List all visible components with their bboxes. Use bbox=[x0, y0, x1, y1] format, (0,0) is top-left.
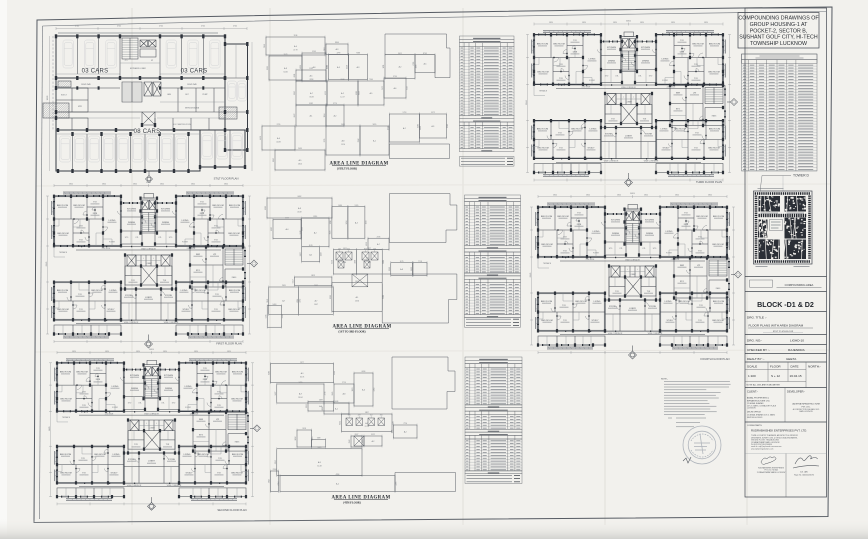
svg-text:0000X0000: 0000X0000 bbox=[710, 46, 719, 48]
svg-text:0000X0000: 0000X0000 bbox=[609, 121, 618, 123]
svg-text:A-8: A-8 bbox=[313, 66, 316, 69]
svg-text:A-3: A-3 bbox=[355, 221, 358, 224]
svg-text:03 CARS: 03 CARS bbox=[82, 69, 109, 75]
svg-text:0000X0000: 0000X0000 bbox=[557, 66, 566, 68]
svg-text:0000X0000: 0000X0000 bbox=[59, 311, 68, 313]
svg-text:0000X0000: 0000X0000 bbox=[604, 136, 613, 138]
svg-text:8860: 8860 bbox=[322, 407, 324, 411]
svg-text:2200 WIDE: 2200 WIDE bbox=[671, 259, 681, 261]
svg-text:4762: 4762 bbox=[299, 299, 301, 303]
svg-text:0000X0000: 0000X0000 bbox=[233, 401, 242, 403]
svg-text:52.48: 52.48 bbox=[317, 466, 321, 468]
svg-text:9965: 9965 bbox=[332, 392, 334, 396]
svg-text:36810: 36810 bbox=[626, 20, 631, 22]
svg-text:0000X0000: 0000X0000 bbox=[696, 239, 705, 241]
svg-text:0000X0000: 0000X0000 bbox=[710, 131, 719, 133]
svg-text:FOYER: FOYER bbox=[112, 407, 119, 409]
svg-text:7748: 7748 bbox=[325, 392, 327, 396]
svg-text:A-7: A-7 bbox=[377, 243, 380, 246]
svg-text:UTL: UTL bbox=[615, 76, 618, 78]
svg-text:7490: 7490 bbox=[330, 220, 332, 224]
svg-text:0000X0000: 0000X0000 bbox=[201, 381, 210, 383]
svg-text:SOC. MEETING ROOM: SOC. MEETING ROOM bbox=[173, 124, 192, 126]
svg-text:8897: 8897 bbox=[273, 158, 275, 162]
svg-text:4740: 4740 bbox=[201, 26, 205, 28]
svg-text:0000X0000: 0000X0000 bbox=[591, 322, 600, 324]
svg-text:1590: 1590 bbox=[447, 124, 449, 128]
svg-text:A-2: A-2 bbox=[336, 483, 339, 486]
svg-text:8700: 8700 bbox=[330, 295, 332, 299]
svg-text:0000X0000: 0000X0000 bbox=[127, 211, 136, 213]
svg-text:0000X0000: 0000X0000 bbox=[542, 218, 551, 220]
svg-text:UTL: UTL bbox=[135, 237, 138, 239]
svg-text:UTL: UTL bbox=[619, 248, 622, 250]
svg-text:2200 WIDE: 2200 WIDE bbox=[187, 248, 197, 250]
svg-text:0000X0000: 0000X0000 bbox=[196, 292, 205, 294]
svg-text:287: 287 bbox=[358, 415, 361, 417]
svg-text:0000X0000: 0000X0000 bbox=[213, 296, 222, 298]
svg-text:1514: 1514 bbox=[324, 114, 326, 118]
svg-text:A-1: A-1 bbox=[356, 296, 359, 299]
svg-text:TERRACE: TERRACE bbox=[59, 251, 68, 254]
svg-text:4799: 4799 bbox=[337, 53, 341, 55]
svg-text:FOYER: FOYER bbox=[589, 80, 596, 82]
svg-text:0000X0000: 0000X0000 bbox=[62, 474, 71, 476]
svg-text:47.79: 47.79 bbox=[293, 50, 297, 52]
svg-text:0000X0000: 0000X0000 bbox=[91, 215, 100, 217]
svg-text:2200 WIDE: 2200 WIDE bbox=[102, 248, 112, 250]
svg-text:WIDE CORRIDOR: WIDE CORRIDOR bbox=[604, 161, 619, 163]
svg-text:9403: 9403 bbox=[273, 304, 277, 306]
svg-text:5820: 5820 bbox=[194, 351, 198, 353]
svg-text:L: L bbox=[153, 258, 154, 260]
svg-text:2039: 2039 bbox=[298, 148, 302, 150]
svg-text:0000X0000: 0000X0000 bbox=[160, 282, 169, 284]
svg-text:4396: 4396 bbox=[336, 474, 340, 476]
svg-text:0000X0000: 0000X0000 bbox=[210, 256, 219, 258]
svg-text:WIDE CORRIDOR: WIDE CORRIDOR bbox=[648, 333, 663, 335]
svg-text:3197: 3197 bbox=[294, 91, 296, 95]
svg-text:A-9: A-9 bbox=[299, 393, 302, 396]
svg-text:L: L bbox=[623, 97, 624, 99]
svg-text:STO: STO bbox=[609, 248, 613, 250]
svg-text:5557: 5557 bbox=[293, 279, 295, 283]
svg-text:2196: 2196 bbox=[377, 236, 381, 238]
svg-text:1701: 1701 bbox=[383, 65, 385, 69]
svg-text:0000X0000: 0000X0000 bbox=[163, 446, 172, 448]
svg-text:5820: 5820 bbox=[105, 351, 109, 353]
svg-text:STO: STO bbox=[605, 76, 609, 78]
svg-text:36810: 36810 bbox=[149, 349, 154, 351]
svg-text:A-6: A-6 bbox=[277, 137, 280, 140]
svg-text:WIDE CORRIDOR: WIDE CORRIDOR bbox=[644, 161, 659, 163]
svg-text:FOURTH FLOOR PLAN: FOURTH FLOOR PLAN bbox=[701, 357, 730, 361]
svg-text:SECOND FLOOR PLAN: SECOND FLOOR PLAN bbox=[217, 508, 246, 512]
svg-text:0000X0000: 0000X0000 bbox=[592, 233, 601, 235]
svg-text:STO: STO bbox=[649, 76, 653, 78]
svg-text:0000X0000: 0000X0000 bbox=[641, 49, 650, 51]
svg-text:5820: 5820 bbox=[102, 184, 106, 186]
svg-text:0000X0000: 0000X0000 bbox=[185, 474, 194, 476]
svg-text:7658: 7658 bbox=[273, 469, 277, 471]
svg-text:POCKET-2, SECTOR B,: POCKET-2, SECTOR B, bbox=[750, 28, 808, 34]
svg-text:0000X0000: 0000X0000 bbox=[96, 456, 105, 458]
svg-text:A-2: A-2 bbox=[403, 127, 406, 130]
svg-text:1118: 1118 bbox=[309, 68, 313, 70]
svg-text:9310: 9310 bbox=[356, 91, 358, 95]
svg-text:A-3: A-3 bbox=[337, 66, 340, 69]
svg-text:9774: 9774 bbox=[333, 103, 337, 105]
svg-text:0000X0000: 0000X0000 bbox=[107, 311, 116, 313]
svg-text:5820: 5820 bbox=[191, 184, 195, 186]
svg-text:0000X0000: 0000X0000 bbox=[664, 303, 673, 305]
svg-text:A-9: A-9 bbox=[357, 66, 360, 69]
svg-text:4740: 4740 bbox=[159, 26, 163, 28]
svg-text:DRIVE WAY: DRIVE WAY bbox=[81, 83, 91, 86]
svg-text:8464: 8464 bbox=[340, 421, 342, 425]
svg-text:A-1: A-1 bbox=[301, 372, 304, 375]
svg-text:UTL: UTL bbox=[642, 248, 645, 250]
svg-text:8446: 8446 bbox=[335, 401, 339, 403]
svg-text:0000X0000: 0000X0000 bbox=[613, 293, 622, 295]
svg-text:0000X0000: 0000X0000 bbox=[696, 253, 705, 255]
svg-text:352: 352 bbox=[347, 249, 350, 251]
svg-text:0000X0000: 0000X0000 bbox=[682, 215, 691, 217]
svg-text:0000X0000: 0000X0000 bbox=[694, 267, 703, 269]
svg-text:3206: 3206 bbox=[396, 482, 398, 486]
svg-text:0000X0000: 0000X0000 bbox=[694, 46, 703, 48]
svg-text:0000X0000: 0000X0000 bbox=[538, 131, 547, 133]
svg-text:9522: 9522 bbox=[371, 434, 375, 436]
svg-text:WIDE CORRIDOR: WIDE CORRIDOR bbox=[625, 259, 640, 261]
svg-text:A-1: A-1 bbox=[373, 140, 376, 143]
svg-text:A-4: A-4 bbox=[286, 228, 289, 231]
svg-text:0000X0000: 0000X0000 bbox=[80, 393, 89, 395]
svg-text:UTL: UTL bbox=[138, 403, 141, 405]
svg-text:2705: 2705 bbox=[277, 124, 281, 126]
svg-text:823: 823 bbox=[364, 249, 367, 251]
svg-text:18220: 18220 bbox=[47, 96, 49, 101]
svg-text:0000X0000: 0000X0000 bbox=[539, 150, 548, 152]
svg-text:A-2: A-2 bbox=[365, 422, 368, 425]
svg-text:161: 161 bbox=[366, 258, 369, 260]
svg-text:0000X0000: 0000X0000 bbox=[593, 303, 602, 305]
svg-text:UTL: UTL bbox=[161, 403, 164, 405]
svg-text:6422: 6422 bbox=[420, 126, 422, 130]
svg-text:5820: 5820 bbox=[617, 195, 621, 197]
svg-text:60.76: 60.76 bbox=[300, 377, 304, 379]
svg-text:COMPOUNDING DRAWINGS OF: COMPOUNDING DRAWINGS OF bbox=[738, 16, 819, 22]
svg-text:8745: 8745 bbox=[423, 53, 427, 55]
svg-text:5820: 5820 bbox=[671, 22, 675, 24]
svg-text:0000X0000: 0000X0000 bbox=[560, 307, 569, 309]
svg-text:0000X0000: 0000X0000 bbox=[167, 461, 176, 463]
svg-text:5820: 5820 bbox=[644, 195, 648, 197]
svg-text:LOBBY: LOBBY bbox=[626, 102, 633, 104]
svg-text:(4TH FLOOR): (4TH FLOOR) bbox=[343, 502, 360, 505]
svg-text:0000X0000: 0000X0000 bbox=[77, 242, 86, 244]
svg-text:0000X0000: 0000X0000 bbox=[696, 322, 705, 324]
svg-text:A-5: A-5 bbox=[370, 92, 373, 95]
svg-text:0000X0000: 0000X0000 bbox=[692, 150, 701, 152]
svg-text:0000X0000: 0000X0000 bbox=[608, 308, 617, 310]
svg-text:A-2: A-2 bbox=[404, 431, 407, 434]
svg-text:0000X0000: 0000X0000 bbox=[216, 460, 225, 462]
svg-text:0000X0000: 0000X0000 bbox=[201, 370, 210, 372]
svg-text:08 CARS: 08 CARS bbox=[134, 129, 161, 135]
svg-text:DRIVE WAY: DRIVE WAY bbox=[187, 83, 197, 86]
svg-text:1584: 1584 bbox=[366, 220, 368, 224]
svg-text:03 CARS: 03 CARS bbox=[181, 69, 208, 75]
svg-text:A-7: A-7 bbox=[315, 300, 318, 303]
svg-text:THIRD FLOOR PLAN: THIRD FLOOR PLAN bbox=[696, 180, 722, 184]
svg-text:L: L bbox=[627, 269, 628, 271]
svg-text:6688: 6688 bbox=[334, 371, 336, 375]
svg-text:0000X0000: 0000X0000 bbox=[182, 311, 191, 313]
svg-text:1215: 1215 bbox=[267, 66, 269, 70]
svg-text:7790: 7790 bbox=[403, 423, 407, 425]
svg-text:0000X0000: 0000X0000 bbox=[215, 474, 224, 476]
svg-text:FOYER: FOYER bbox=[662, 80, 669, 82]
svg-text:2200 WIDE: 2200 WIDE bbox=[105, 413, 115, 415]
svg-text:4459: 4459 bbox=[260, 136, 262, 140]
svg-text:1492: 1492 bbox=[331, 260, 333, 264]
svg-text:23.36: 23.36 bbox=[355, 301, 359, 303]
svg-text:FOYER: FOYER bbox=[666, 253, 673, 255]
svg-text:3597: 3597 bbox=[275, 460, 277, 464]
svg-text:2073: 2073 bbox=[284, 54, 288, 56]
svg-text:7677: 7677 bbox=[382, 86, 384, 90]
svg-text:4303: 4303 bbox=[374, 388, 376, 392]
svg-text:0000X0000: 0000X0000 bbox=[181, 222, 190, 224]
svg-text:1248: 1248 bbox=[320, 252, 322, 256]
svg-text:A-9: A-9 bbox=[432, 125, 435, 128]
svg-text:15.54: 15.54 bbox=[341, 144, 345, 146]
svg-text:8492: 8492 bbox=[311, 275, 315, 277]
svg-text:0000X0000: 0000X0000 bbox=[710, 74, 719, 76]
svg-text:5820: 5820 bbox=[613, 22, 617, 24]
svg-text:7725: 7725 bbox=[324, 139, 326, 143]
svg-text:4200: 4200 bbox=[354, 260, 356, 264]
svg-text:5820: 5820 bbox=[582, 22, 586, 24]
svg-text:TOWER D: TOWER D bbox=[793, 174, 809, 178]
svg-text:36810: 36810 bbox=[146, 182, 151, 184]
svg-text:0000X0000: 0000X0000 bbox=[199, 456, 208, 458]
svg-text:0000X0000: 0000X0000 bbox=[641, 63, 650, 65]
svg-text:A-7: A-7 bbox=[282, 300, 285, 303]
svg-text:0000X0000: 0000X0000 bbox=[714, 322, 723, 324]
svg-text:0000X0000: 0000X0000 bbox=[628, 310, 637, 312]
svg-text:0000X0000: 0000X0000 bbox=[58, 292, 67, 294]
svg-text:1736: 1736 bbox=[388, 126, 390, 130]
svg-text:A-2: A-2 bbox=[399, 66, 402, 69]
svg-text:STILT FLOOR PLAN: STILT FLOOR PLAN bbox=[214, 177, 239, 181]
svg-text:4740: 4740 bbox=[117, 26, 121, 28]
svg-text:0000X0000: 0000X0000 bbox=[660, 131, 669, 133]
svg-text:-2.5: -2.5 bbox=[125, 60, 128, 62]
svg-text:44.83: 44.83 bbox=[276, 142, 280, 144]
svg-text:0000X0000: 0000X0000 bbox=[161, 224, 170, 226]
svg-text:0000X0000: 0000X0000 bbox=[230, 292, 239, 294]
svg-text:8804: 8804 bbox=[335, 42, 339, 44]
svg-text:7061: 7061 bbox=[264, 44, 266, 48]
svg-text:GROUP HOUSING-1 AT: GROUP HOUSING-1 AT bbox=[750, 22, 809, 28]
svg-text:0000X0000: 0000X0000 bbox=[77, 228, 86, 230]
svg-text:0000X0000: 0000X0000 bbox=[194, 272, 203, 274]
svg-text:A-8: A-8 bbox=[342, 140, 345, 143]
svg-text:5820: 5820 bbox=[708, 195, 712, 197]
svg-text:5820: 5820 bbox=[704, 22, 708, 24]
svg-text:0000X0000: 0000X0000 bbox=[575, 215, 584, 217]
svg-text:0000X0000: 0000X0000 bbox=[674, 111, 683, 113]
svg-text:0000X0000: 0000X0000 bbox=[682, 226, 691, 228]
svg-text:L: L bbox=[633, 97, 634, 99]
svg-text:LOBBY: LOBBY bbox=[149, 428, 156, 430]
svg-text:0000X0000: 0000X0000 bbox=[91, 204, 100, 206]
svg-text:0000X0000: 0000X0000 bbox=[110, 474, 119, 476]
svg-text:0000X0000: 0000X0000 bbox=[577, 303, 586, 305]
svg-text:0000X0000: 0000X0000 bbox=[230, 311, 239, 313]
svg-text:A-5: A-5 bbox=[299, 159, 302, 162]
svg-text:5820: 5820 bbox=[227, 351, 231, 353]
svg-text:3672: 3672 bbox=[294, 114, 296, 118]
svg-text:(STILT FLOOR): (STILT FLOOR) bbox=[337, 167, 357, 170]
svg-text:1248: 1248 bbox=[347, 65, 349, 69]
svg-text:TERRACE: TERRACE bbox=[543, 262, 552, 265]
svg-text:6519: 6519 bbox=[309, 245, 313, 247]
svg-text:9380: 9380 bbox=[269, 371, 271, 375]
svg-text:0000X0000: 0000X0000 bbox=[111, 388, 120, 390]
svg-text:9320: 9320 bbox=[265, 206, 267, 210]
svg-text:5820: 5820 bbox=[224, 184, 228, 186]
svg-text:5820: 5820 bbox=[136, 351, 140, 353]
svg-text:1275: 1275 bbox=[392, 430, 394, 434]
svg-text:STO: STO bbox=[653, 248, 657, 250]
svg-text:0000X0000: 0000X0000 bbox=[710, 150, 719, 152]
svg-text:2200 WIDE: 2200 WIDE bbox=[586, 259, 596, 261]
svg-text:0000X0000: 0000X0000 bbox=[678, 267, 687, 269]
svg-text:9750: 9750 bbox=[393, 76, 397, 78]
svg-text:0000X0000: 0000X0000 bbox=[164, 377, 173, 379]
svg-text:0000X0000: 0000X0000 bbox=[571, 54, 580, 56]
svg-text:2200 WIDE: 2200 WIDE bbox=[667, 87, 677, 89]
svg-text:12.27: 12.27 bbox=[340, 97, 344, 99]
svg-text:0000X0000: 0000X0000 bbox=[561, 253, 570, 255]
svg-text:A-9: A-9 bbox=[336, 48, 339, 51]
svg-text:16.47: 16.47 bbox=[314, 304, 318, 306]
svg-text:0000X0000: 0000X0000 bbox=[124, 297, 133, 299]
svg-text:2768: 2768 bbox=[282, 314, 284, 318]
svg-text:A-7: A-7 bbox=[310, 92, 313, 95]
svg-text:L: L bbox=[637, 269, 638, 271]
svg-text:36810: 36810 bbox=[630, 193, 635, 195]
svg-text:0000X0000: 0000X0000 bbox=[698, 218, 707, 220]
svg-text:4740: 4740 bbox=[75, 26, 79, 28]
svg-text:2261: 2261 bbox=[294, 74, 296, 78]
svg-text:0000X0000: 0000X0000 bbox=[539, 74, 548, 76]
svg-text:0000X0000: 0000X0000 bbox=[94, 370, 103, 372]
svg-text:0000X0000: 0000X0000 bbox=[127, 461, 136, 463]
svg-text:3611: 3611 bbox=[398, 53, 402, 55]
svg-text:0000X0000: 0000X0000 bbox=[561, 322, 570, 324]
svg-text:28.25: 28.25 bbox=[298, 164, 302, 166]
svg-text:WIDE CORRIDOR: WIDE CORRIDOR bbox=[621, 87, 636, 89]
svg-text:7388: 7388 bbox=[356, 53, 360, 55]
svg-text:0000X0000: 0000X0000 bbox=[543, 246, 552, 248]
svg-text:6096: 6096 bbox=[362, 371, 366, 373]
svg-text:986: 986 bbox=[348, 415, 351, 417]
svg-text:0000X0000: 0000X0000 bbox=[692, 66, 701, 68]
svg-text:0000X0000: 0000X0000 bbox=[79, 460, 88, 462]
svg-text:TERRACE: TERRACE bbox=[62, 416, 71, 419]
svg-text:5572: 5572 bbox=[431, 112, 435, 114]
svg-text:(1ST TO 3RD FLOOR): (1ST TO 3RD FLOOR) bbox=[339, 331, 366, 334]
svg-text:7933: 7933 bbox=[349, 440, 351, 444]
svg-text:FOYER: FOYER bbox=[593, 253, 600, 255]
svg-text:4555: 4555 bbox=[325, 91, 327, 95]
svg-text:5582: 5582 bbox=[309, 103, 313, 105]
svg-text:0000X0000: 0000X0000 bbox=[678, 54, 687, 56]
svg-text:0000X0000: 0000X0000 bbox=[607, 49, 616, 51]
svg-text:0000X0000: 0000X0000 bbox=[108, 222, 117, 224]
svg-text:WIDE CORRIDOR: WIDE CORRIDOR bbox=[144, 414, 159, 416]
svg-text:0000X0000: 0000X0000 bbox=[665, 233, 674, 235]
svg-text:LOBBY: LOBBY bbox=[146, 263, 153, 265]
svg-text:0000X0000: 0000X0000 bbox=[161, 211, 170, 213]
svg-text:6517: 6517 bbox=[407, 86, 409, 90]
svg-text:2200 WIDE: 2200 WIDE bbox=[582, 87, 592, 89]
svg-text:0000X0000: 0000X0000 bbox=[164, 297, 173, 299]
svg-text:0000X0000: 0000X0000 bbox=[215, 407, 224, 409]
svg-text:LOBBY: LOBBY bbox=[630, 274, 637, 276]
svg-text:0000X0000: 0000X0000 bbox=[61, 456, 70, 458]
svg-text:9887: 9887 bbox=[365, 412, 369, 414]
svg-text:UTL: UTL bbox=[638, 76, 641, 78]
svg-text:A-2: A-2 bbox=[314, 231, 317, 234]
svg-text:0000X0000: 0000X0000 bbox=[644, 136, 653, 138]
svg-text:STO: STO bbox=[125, 237, 129, 239]
svg-text:7998: 7998 bbox=[358, 139, 360, 143]
svg-text:0000X0000: 0000X0000 bbox=[557, 80, 566, 82]
svg-text:0000X0000: 0000X0000 bbox=[144, 299, 153, 301]
svg-text:0000X0000: 0000X0000 bbox=[662, 150, 671, 152]
svg-text:0000X0000: 0000X0000 bbox=[556, 135, 565, 137]
svg-text:0000X0000: 0000X0000 bbox=[561, 239, 570, 241]
svg-text:PUMP: PUMP bbox=[202, 94, 208, 96]
svg-text:2200 WIDE: 2200 WIDE bbox=[190, 413, 200, 415]
svg-text:0000X0000: 0000X0000 bbox=[217, 374, 226, 376]
svg-text:4740: 4740 bbox=[233, 26, 237, 28]
svg-text:WIDE CORRIDOR: WIDE CORRIDOR bbox=[124, 322, 139, 324]
svg-text:A-8: A-8 bbox=[284, 67, 287, 70]
svg-text:0000X0000: 0000X0000 bbox=[80, 407, 89, 409]
svg-text:0000X0000: 0000X0000 bbox=[112, 456, 121, 458]
svg-text:0000X0000: 0000X0000 bbox=[59, 235, 68, 237]
svg-text:0000X0000: 0000X0000 bbox=[697, 307, 706, 309]
svg-text:0000X0000: 0000X0000 bbox=[80, 474, 89, 476]
svg-text:0000X0000: 0000X0000 bbox=[714, 218, 723, 220]
svg-text:A-6: A-6 bbox=[394, 87, 397, 90]
svg-text:0000X0000: 0000X0000 bbox=[624, 138, 633, 140]
svg-text:0000X0000: 0000X0000 bbox=[198, 215, 207, 217]
svg-text:0000X0000: 0000X0000 bbox=[197, 437, 206, 439]
svg-text:0000X0000: 0000X0000 bbox=[127, 224, 136, 226]
svg-text:0000X0000: 0000X0000 bbox=[212, 228, 221, 230]
svg-text:3429: 3429 bbox=[299, 382, 303, 384]
svg-text:0000X0000: 0000X0000 bbox=[75, 207, 84, 209]
svg-text:0000X0000: 0000X0000 bbox=[233, 374, 242, 376]
svg-text:0000X0000: 0000X0000 bbox=[543, 322, 552, 324]
